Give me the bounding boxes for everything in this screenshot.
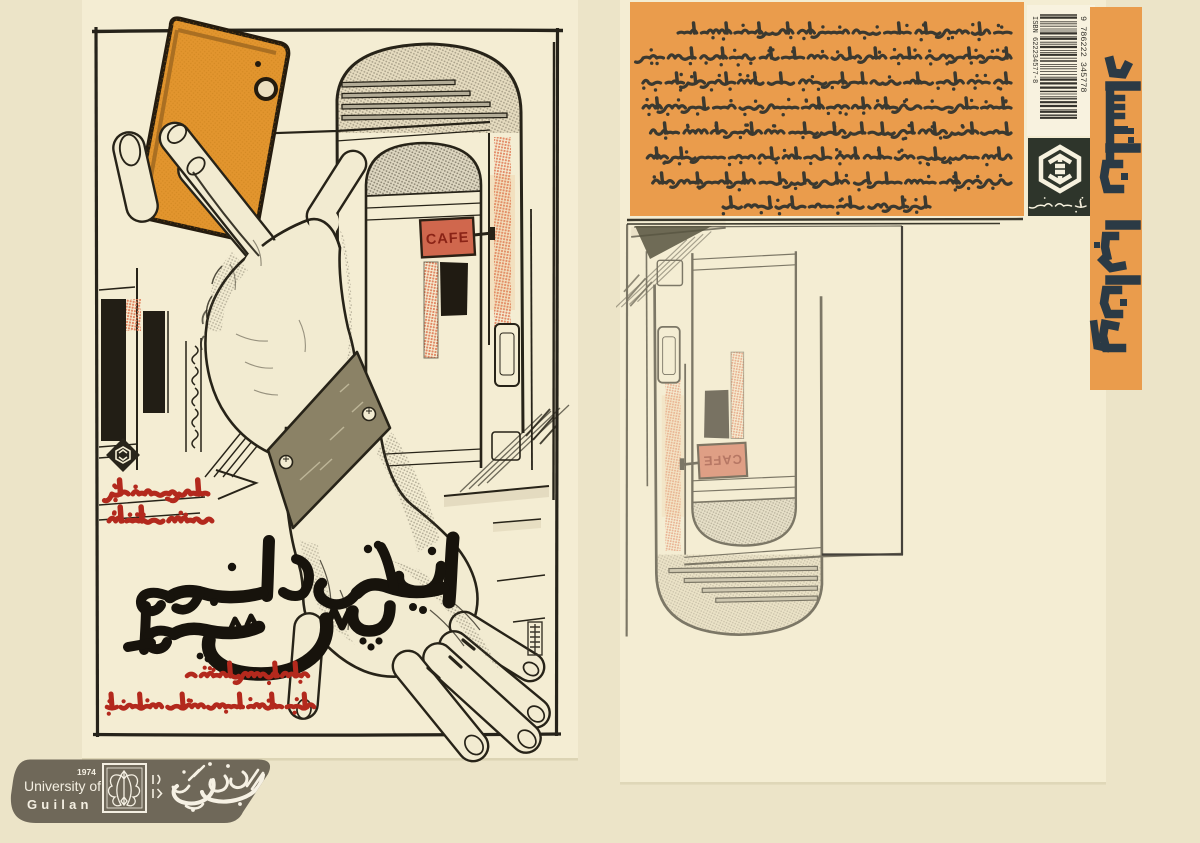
svg-text:1974: 1974: [77, 767, 96, 777]
svg-text:9 786222 345778: 9 786222 345778: [1078, 16, 1088, 93]
svg-text:Guilan: Guilan: [27, 797, 93, 812]
svg-text:University of: University of: [24, 778, 101, 794]
svg-text:ISBN 622234577-8: ISBN 622234577-8: [1030, 16, 1038, 83]
svg-text:CAFE: CAFE: [425, 230, 469, 248]
